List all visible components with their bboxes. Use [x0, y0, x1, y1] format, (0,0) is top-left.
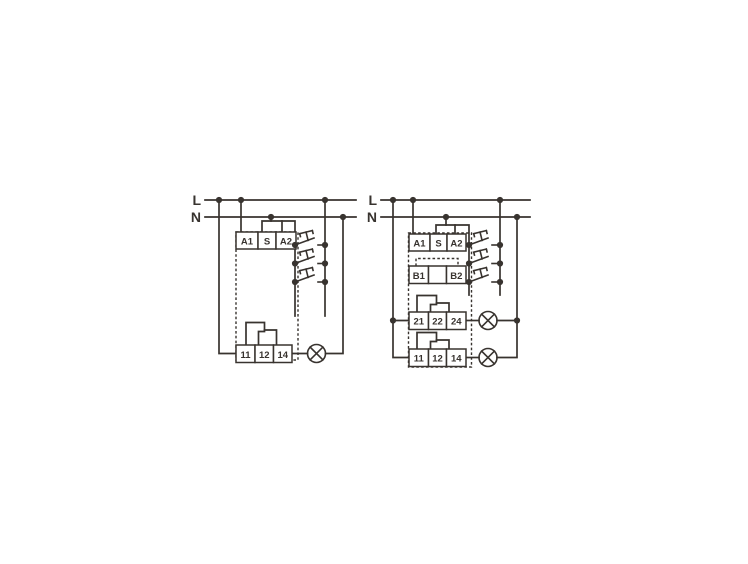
terminal-label-11: 11 — [240, 350, 251, 361]
right-output-row-21: 21 22 24 — [409, 312, 466, 330]
wiring-diagram-figure: L N A1 S A2 11 — [0, 0, 748, 564]
lamp-icon — [479, 349, 497, 367]
left-top-terminal-row: A1 S A2 — [236, 232, 296, 249]
terminal-label-a1: A1 — [241, 236, 254, 247]
push-button-icon — [469, 231, 499, 245]
right-b-terminal-row: B1 B2 — [409, 266, 466, 284]
push-button-icon — [295, 268, 325, 282]
right-feed-wire-l-to-11 — [393, 200, 409, 358]
right-top-terminal-row: A1 S A2 — [409, 234, 466, 251]
right-changeover-contact-icon-21 — [417, 296, 449, 313]
terminal-label-11: 11 — [414, 354, 425, 365]
terminal-label-14: 14 — [451, 354, 462, 365]
terminal-label-b2: B2 — [450, 271, 462, 282]
lamp-icon — [308, 345, 326, 363]
left-neutral-label: N — [191, 209, 201, 225]
right-diagram: L N A1 S — [367, 192, 530, 367]
terminal-label-a2: A2 — [450, 238, 462, 249]
left-changeover-contact-icon — [246, 323, 277, 346]
terminal-label-a2: A2 — [280, 236, 292, 247]
right-live-label: L — [368, 192, 377, 208]
right-b-jumper-dashed — [416, 259, 458, 267]
left-live-label: L — [192, 192, 201, 208]
right-device-outline — [409, 233, 472, 367]
right-neutral-label: N — [367, 209, 377, 225]
push-button-icon — [469, 268, 499, 282]
lamp-icon — [479, 312, 497, 330]
terminal-label-14: 14 — [278, 350, 289, 361]
terminal-label-12: 12 — [259, 350, 270, 361]
terminal-label-s: S — [264, 236, 270, 247]
terminal-label-21: 21 — [414, 317, 425, 328]
push-button-icon — [295, 231, 325, 245]
terminal-label-22: 22 — [432, 317, 443, 328]
right-changeover-contact-icon-11 — [417, 333, 449, 350]
push-button-icon — [295, 249, 325, 263]
left-bottom-terminal-row: 11 12 14 — [236, 345, 292, 363]
terminal-label-12: 12 — [432, 354, 443, 365]
wiring-diagram-page: L N A1 S A2 11 — [0, 0, 748, 564]
terminal-label-a1: A1 — [413, 238, 426, 249]
terminal-label-b1: B1 — [413, 271, 426, 282]
terminal-label-24: 24 — [451, 317, 462, 328]
terminal-box-b-middle — [429, 266, 447, 284]
right-output-row-11: 11 12 14 — [409, 349, 466, 367]
terminal-label-s: S — [435, 238, 441, 249]
left-diagram: L N A1 S A2 11 — [191, 192, 356, 363]
left-feed-wire-l-to-11 — [219, 200, 236, 354]
push-button-icon — [469, 249, 499, 263]
left-lamp-wire-to-neutral — [326, 217, 344, 354]
